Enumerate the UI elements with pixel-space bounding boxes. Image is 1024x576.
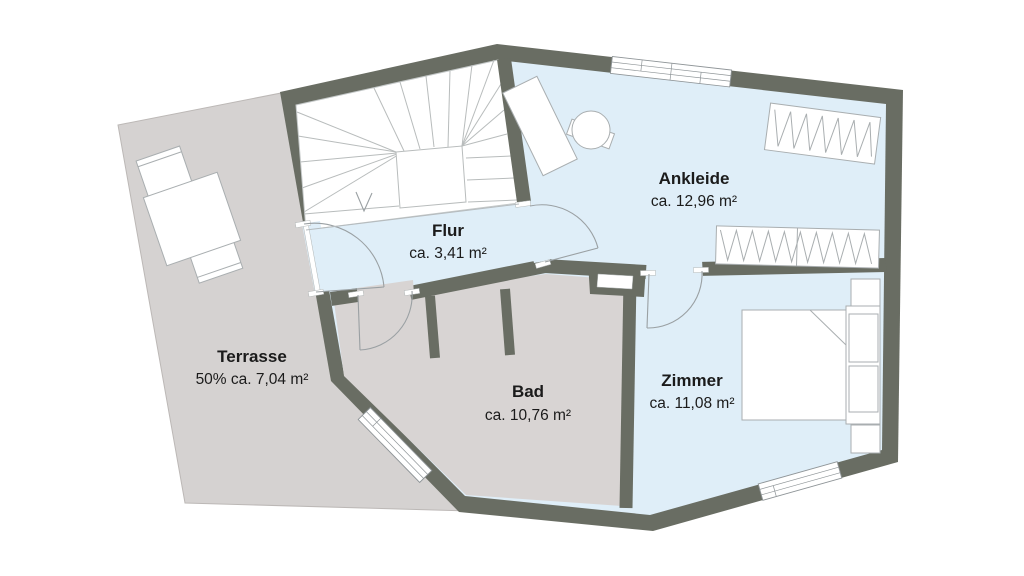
label-terrasse-area: 50% ca. 7,04 m² [196,371,309,388]
label-bad-area: ca. 10,76 m² [485,407,571,424]
label-bad-name: Bad [512,382,544,401]
floor-plan: Flur ca. 3,41 m² Ankleide ca. 12,96 m² Z… [0,0,1024,576]
pillow [849,366,878,412]
bath-partition-stub [505,289,510,355]
mattress [742,310,846,420]
floor-plan-page: Flur ca. 3,41 m² Ankleide ca. 12,96 m² Z… [0,0,1024,576]
nightstand [851,279,880,306]
label-ankleide-area: ca. 12,96 m² [651,193,737,210]
label-zimmer-name: Zimmer [661,371,723,390]
pillow [849,314,878,362]
label-ankleide-name: Ankleide [659,169,730,188]
bath-partition-stub [430,296,435,358]
label-terrasse-name: Terrasse [217,347,287,366]
label-zimmer-area: ca. 11,08 m² [649,395,734,412]
nightstand [851,425,880,453]
stair-landing [396,146,466,208]
wall-bad-zimmer [626,279,630,508]
label-flur-area: ca. 3,41 m² [409,245,487,262]
wardrobe [716,226,880,268]
label-flur-name: Flur [432,221,464,240]
wall-niche [597,274,633,289]
